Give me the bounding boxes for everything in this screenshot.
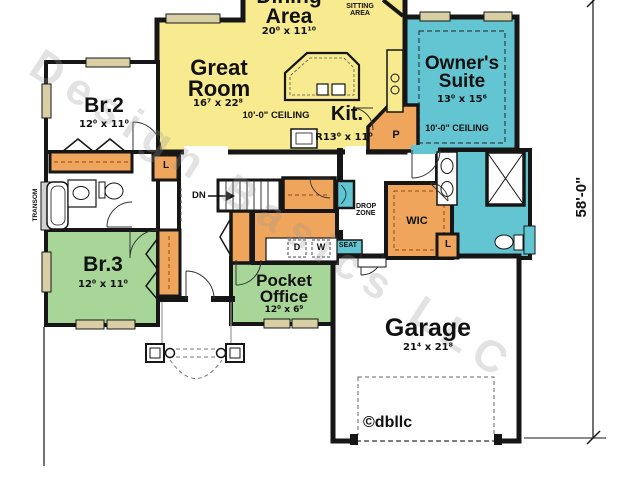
hall-closet [231, 211, 251, 263]
stairs [208, 180, 280, 211]
kitchen-ovens [387, 50, 403, 112]
dimension-line-right [524, 0, 606, 444]
linen-closet-suite [437, 234, 458, 258]
bath2-vanity [68, 180, 96, 207]
opening-kitchen-hall [345, 146, 366, 156]
room-pocket-office [231, 258, 333, 324]
opening-suite-door [411, 145, 438, 154]
garage-door-jamb-right [494, 434, 502, 445]
laundry-counter [266, 238, 337, 261]
room-garage [333, 256, 519, 441]
floor-plan-drawing [0, 0, 640, 480]
bathtub [47, 182, 68, 229]
garage-door-opening [356, 435, 496, 445]
floor-plan: Design Basics LLC Dining Area 20⁰ x 11¹⁰… [0, 0, 640, 480]
owners-vanity [437, 152, 457, 205]
garage-stoop [358, 258, 386, 267]
porch-column-left [146, 344, 164, 362]
dryer-box [288, 240, 306, 257]
entry-wall-right [211, 296, 235, 302]
porch-column-right [226, 344, 244, 362]
garage-door-jamb-left [350, 434, 358, 445]
room-owners-suite [405, 17, 517, 150]
hall-wall-stub-2 [337, 148, 343, 180]
opening-greatroom-hall [184, 146, 228, 156]
bath2-toilet [99, 182, 123, 199]
room-br2 [46, 62, 158, 152]
porch-step-arc [170, 360, 222, 379]
hall-wall-stub-1 [177, 152, 181, 230]
owners-toilet [495, 235, 523, 250]
room-br3 [46, 230, 158, 325]
linen-closet-hall [153, 155, 178, 180]
drop-zone-bench [337, 181, 354, 208]
shower [487, 152, 524, 205]
washer-box [312, 240, 330, 257]
seat-bench [334, 240, 362, 254]
entry-wall-left [158, 296, 188, 302]
kitchen-range [291, 129, 317, 148]
